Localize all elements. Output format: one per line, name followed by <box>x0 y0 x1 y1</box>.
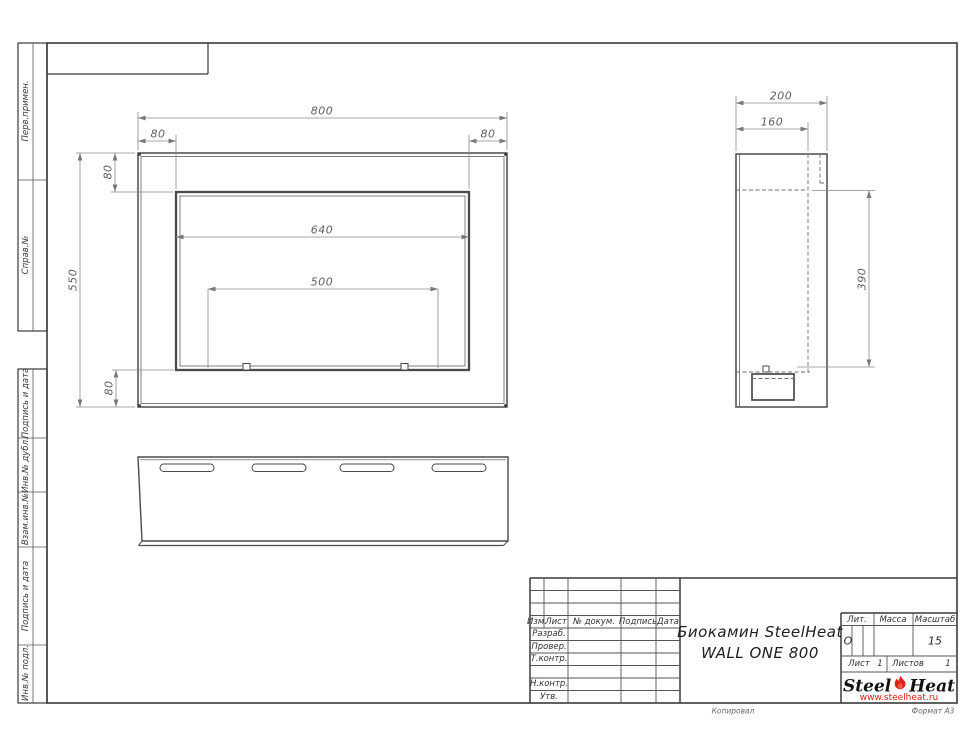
tb-role-utv: Утв. <box>540 692 558 702</box>
strip-label-perv-primen: Перв.примен. <box>21 80 31 141</box>
strip-label-podpis-data-1: Подпись и дата <box>21 368 31 438</box>
tb-title-line2: WALL ONE 800 <box>701 644 819 662</box>
dim-inner-depth: 160 <box>761 116 784 129</box>
tb-header-doc: № докум. <box>573 617 615 627</box>
front-view <box>76 112 507 407</box>
dim-opening-width: 640 <box>311 224 334 237</box>
footer-copied: Копировал <box>712 707 755 716</box>
tb-role-razrab: Разраб. <box>532 629 565 639</box>
strip-label-vzam-inv: Взам.инв.№ <box>21 493 31 545</box>
tb-header-date: Дата <box>657 617 679 627</box>
tb-sheet-value: 1 <box>877 659 882 669</box>
tb-role-nkontr: Н.контр. <box>530 679 568 689</box>
dim-overall-height: 550 <box>67 269 80 292</box>
sheet-frame <box>18 43 957 703</box>
dim-overall-width: 800 <box>311 105 334 118</box>
tb-role-prover: Провер. <box>531 642 566 652</box>
tb-lit-header: Лит. <box>847 615 867 625</box>
tb-role-tkontr: Т.контр. <box>531 654 568 664</box>
tb-sheet-label: Лист <box>848 659 870 669</box>
drawing-sheet: Перв.примен. Справ.№ Подпись и дата Инв.… <box>0 0 970 749</box>
tb-masshtab-value: 15 <box>928 635 942 648</box>
strip-label-sprav-no: Справ.№ <box>21 236 31 275</box>
tb-massa-header: Масса <box>879 615 906 625</box>
tb-sheets-value: 1 <box>945 659 950 669</box>
strip-label-podpis-data-2: Подпись и дата <box>21 561 31 631</box>
strip-label-inv-podl: Инв.№ подл. <box>21 645 31 701</box>
dim-top-flange: 80 <box>102 165 115 180</box>
tb-title-line1: Биокамин SteelHeat <box>677 623 843 641</box>
dim-depth: 200 <box>770 90 793 103</box>
strip-label-inv-dubl: Инв.№ дубл. <box>21 437 31 492</box>
tb-header-sign: Подпись <box>619 617 657 627</box>
logo-url: www.steelheat.ru <box>860 693 938 703</box>
tb-masshtab-header: Масштаб <box>915 615 955 625</box>
tb-sheets-label: Листов <box>892 659 924 669</box>
footer-format: Формат А3 <box>912 707 955 716</box>
dim-opening-height: 390 <box>856 268 869 291</box>
dim-bottom-flange: 80 <box>103 381 116 396</box>
tb-lit-value: О <box>844 635 853 648</box>
side-view <box>736 96 875 407</box>
dim-burner-span: 500 <box>311 276 334 289</box>
tb-header-list: Лист <box>545 617 567 627</box>
bottom-view <box>138 457 508 546</box>
tb-header-izm: Изм. <box>527 617 547 627</box>
dim-top-right-flange: 80 <box>481 128 496 141</box>
dim-top-left-flange: 80 <box>151 128 166 141</box>
